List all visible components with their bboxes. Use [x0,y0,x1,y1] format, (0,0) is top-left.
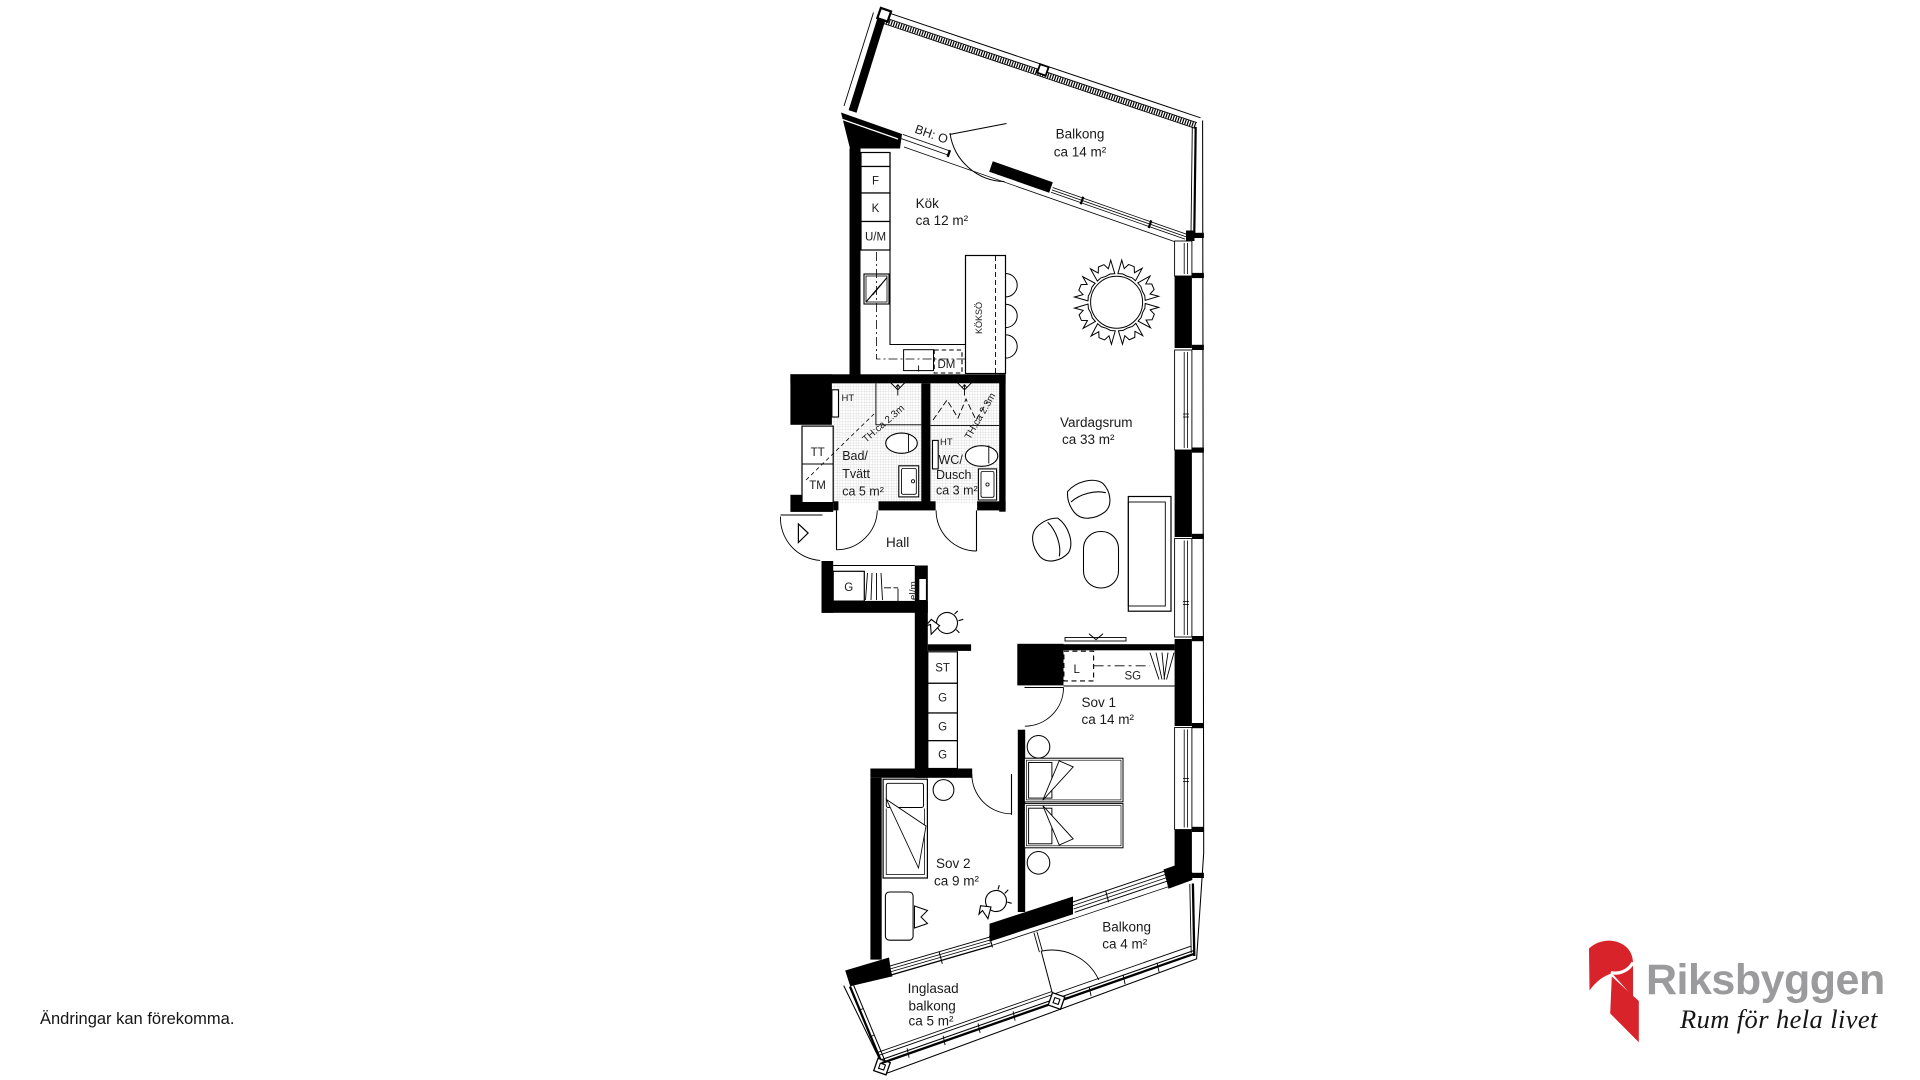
svg-text:SG: SG [1125,671,1142,683]
svg-text:G: G [938,750,947,762]
svg-text:el/m: el/m [909,581,920,600]
svg-text:Balkong: Balkong [1056,127,1105,142]
svg-text:Rum för hela livet: Rum för hela livet [1679,1004,1878,1034]
svg-text:ca 33 m²: ca 33 m² [1062,432,1115,447]
svg-text:Vardagsrum: Vardagsrum [1060,415,1133,430]
svg-text:Kök: Kök [916,196,940,211]
svg-text:ca 5 m²: ca 5 m² [842,485,884,499]
svg-text:G: G [844,582,853,594]
svg-text:TT: TT [811,447,825,459]
svg-text:L: L [1074,664,1081,676]
svg-text:ca 3 m²: ca 3 m² [936,484,978,498]
svg-text:ca 5 m²: ca 5 m² [909,1014,955,1029]
svg-text:Dusch: Dusch [936,468,971,482]
svg-text:HT: HT [940,437,953,448]
svg-text:Ändringar kan förekomma.: Ändringar kan förekomma. [40,1010,234,1028]
svg-text:G: G [938,722,947,734]
svg-text:Riksbyggen: Riksbyggen [1646,956,1885,1004]
svg-text:Inglasad: Inglasad [908,981,959,996]
svg-text:Bad/: Bad/ [842,449,868,463]
svg-text:balkong: balkong [909,999,956,1014]
svg-text:ca 9 m²: ca 9 m² [934,874,980,889]
svg-text:HT: HT [842,393,855,404]
svg-text:Balkong: Balkong [1102,920,1151,935]
svg-text:ca 12 m²: ca 12 m² [916,213,969,228]
svg-text:TM: TM [809,480,826,492]
svg-text:Tvätt: Tvätt [842,467,870,481]
svg-text:ST: ST [935,663,950,675]
svg-text:Sov 1: Sov 1 [1082,695,1117,710]
svg-text:K: K [872,203,880,215]
svg-text:Sov 2: Sov 2 [936,856,971,871]
svg-text:WC/: WC/ [939,453,964,467]
svg-text:U/M: U/M [865,232,886,244]
svg-text:Hall: Hall [886,535,909,550]
svg-text:F: F [872,176,879,188]
svg-text:G: G [938,693,947,705]
svg-text:ca 14 m²: ca 14 m² [1054,145,1107,160]
svg-text:KÖKSÖ: KÖKSÖ [974,302,984,334]
svg-text:ca 14 m²: ca 14 m² [1082,712,1135,727]
svg-text:ca 4 m²: ca 4 m² [1102,937,1148,952]
svg-text:DM: DM [938,359,956,371]
